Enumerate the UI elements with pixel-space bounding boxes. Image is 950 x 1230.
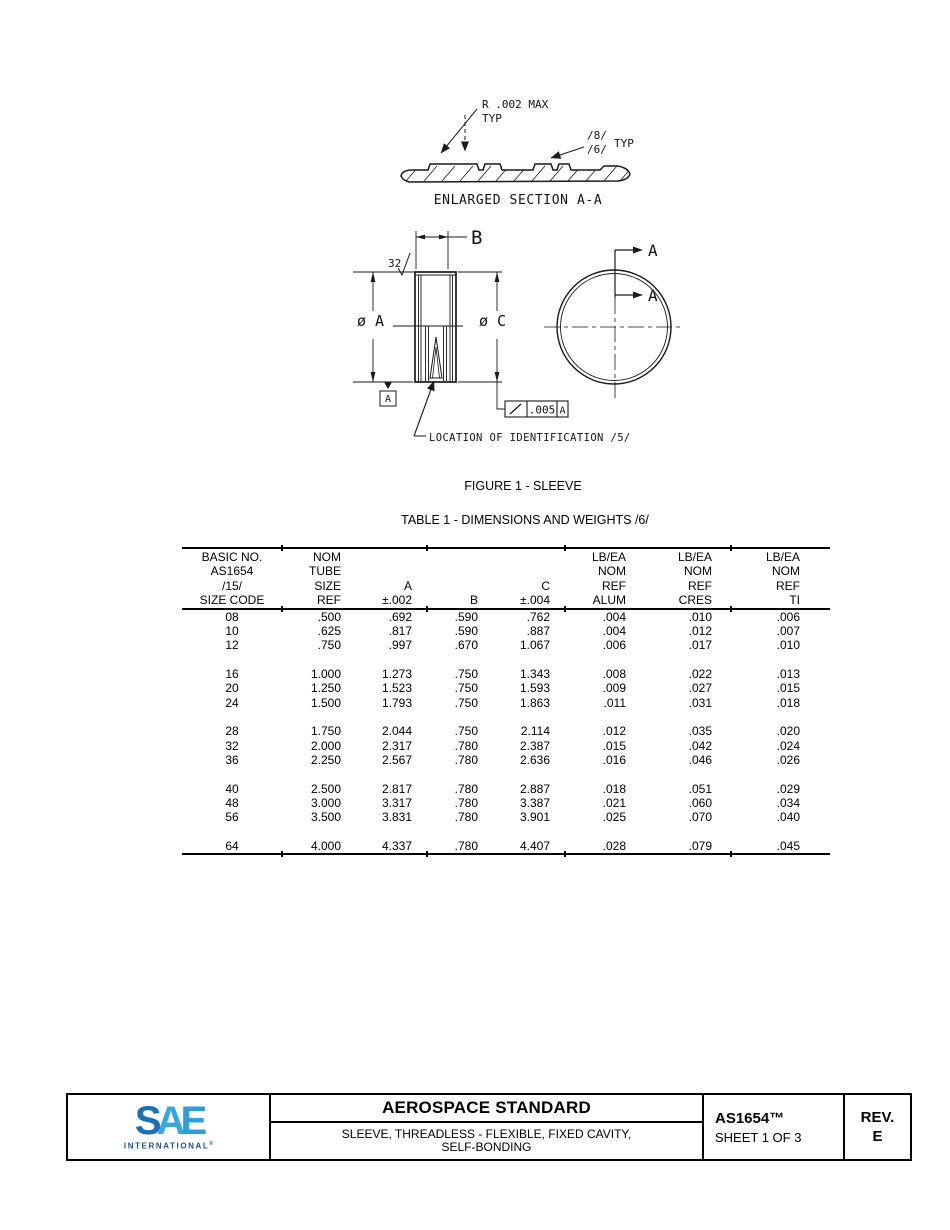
table-cell: .500 (282, 610, 357, 624)
document-subtitle-line2: SELF-BONDING (271, 1141, 702, 1155)
table-cell: .006 (565, 638, 643, 652)
table-row: 322.0002.317.7802.387.015.042.024 (182, 739, 830, 753)
table-header: BASIC NO.AS1654/15/SIZE CODENOMTUBESIZER… (182, 549, 830, 608)
column-header-5: C±.004 (493, 550, 565, 608)
table-cell: 40 (182, 782, 282, 796)
row-group: 08.500.692.590.762.004.010.00610.625.817… (182, 610, 830, 653)
table-cell: .015 (565, 739, 643, 753)
table-row: 563.5003.831.7803.901.025.070.040 (182, 810, 830, 824)
column-header-6: LB/EANOMREFALUM (565, 550, 643, 608)
table-cell: 2.636 (493, 753, 565, 767)
table-cell: .040 (731, 810, 830, 824)
table-cell: 3.831 (357, 810, 427, 824)
table-cell: 3.901 (493, 810, 565, 824)
column-header-7: LB/EANOMREFCRES (643, 550, 731, 608)
table-caption: TABLE 1 - DIMENSIONS AND WEIGHTS /6/ (100, 513, 950, 527)
rev-value: E (872, 1127, 882, 1146)
table-row: 281.7502.044.7502.114.012.035.020 (182, 724, 830, 738)
table-cell: .887 (493, 624, 565, 638)
dim-a-label: ø A (357, 312, 384, 330)
document-type-title: AEROSPACE STANDARD (271, 1095, 702, 1123)
table-cell: 56 (182, 810, 282, 824)
table-cell: .024 (731, 739, 830, 753)
table-cell: .012 (565, 724, 643, 738)
table-cell: .750 (427, 696, 493, 710)
table-cell: .007 (731, 624, 830, 638)
table-cell: 2.387 (493, 739, 565, 753)
table-cell: 2.817 (357, 782, 427, 796)
table-row: 10.625.817.590.887.004.012.007 (182, 624, 830, 638)
table-cell: .011 (565, 696, 643, 710)
sleeve-end-view: A A (544, 241, 684, 401)
table-row: 362.2502.567.7802.636.016.046.026 (182, 753, 830, 767)
table-cell: .029 (731, 782, 830, 796)
title-block-center: AEROSPACE STANDARD SLEEVE, THREADLESS - … (271, 1095, 704, 1159)
table-cell: 2.887 (493, 782, 565, 796)
table-cell: .780 (427, 739, 493, 753)
row-group: 402.5002.817.7802.887.018.051.029483.000… (182, 782, 830, 825)
column-header-1: BASIC NO.AS1654/15/SIZE CODE (182, 550, 282, 608)
datum-a-label: A (385, 394, 391, 405)
title-block-rev-cell: REV. E (845, 1095, 910, 1159)
figure1-sleeve-drawing: R .002 MAX TYP /8/ /6/ TYP ENLARGED SECT… (330, 85, 700, 457)
radius-note-line2: TYP (482, 112, 502, 125)
table-cell: 36 (182, 753, 282, 767)
table-cell: 2.114 (493, 724, 565, 738)
dim-b-label: B (471, 227, 482, 249)
table-cell: .780 (427, 810, 493, 824)
table-cell: .012 (643, 624, 731, 638)
column-header-3: A±.002 (357, 550, 427, 608)
table-cell: 4.407 (493, 839, 565, 853)
table-cell: .020 (731, 724, 830, 738)
table-cell: 2.500 (282, 782, 357, 796)
table-cell: 4.337 (357, 839, 427, 853)
column-header-8: LB/EANOMREFTI (731, 550, 830, 608)
table-cell: 1.750 (282, 724, 357, 738)
sae-letter-e: E (180, 1099, 202, 1143)
sae-letter-a: A (157, 1099, 181, 1143)
table-cell: .010 (731, 638, 830, 652)
table-row: 241.5001.793.7501.863.011.031.018 (182, 696, 830, 710)
finish-typ-label: TYP (614, 137, 634, 150)
radius-note-line1: R .002 MAX (482, 98, 549, 111)
table-cell: .017 (643, 638, 731, 652)
sae-logo: SAE INTERNATIONAL® (68, 1095, 271, 1159)
table-cell: .051 (643, 782, 731, 796)
table-cell: 1.523 (357, 681, 427, 695)
title-block-number-cell: AS1654™ SHEET 1 OF 3 (704, 1095, 845, 1159)
table-cell: 10 (182, 624, 282, 638)
finish-flag-top: /8/ (587, 129, 607, 142)
table-cell: 2.250 (282, 753, 357, 767)
finish-flag-callout: /8/ /6/ TYP (551, 129, 634, 158)
table-row: 483.0003.317.7803.387.021.060.034 (182, 796, 830, 810)
table-cell: .010 (643, 610, 731, 624)
table-cell: .046 (643, 753, 731, 767)
table-header-rule (182, 608, 830, 610)
table-cell: .027 (643, 681, 731, 695)
registered-mark-icon: ® (209, 1141, 213, 1147)
sae-letter-s: S (135, 1099, 157, 1143)
table-cell: 12 (182, 638, 282, 652)
table-cell: .004 (565, 610, 643, 624)
table-cell: .750 (282, 638, 357, 652)
table-cell: 1.593 (493, 681, 565, 695)
table-cell: .026 (731, 753, 830, 767)
surface-finish-value: 32 (388, 257, 401, 270)
table-cell: .015 (731, 681, 830, 695)
sae-logo-letters: SAE (135, 1103, 202, 1139)
enlarged-section-caption: ENLARGED SECTION A-A (434, 193, 603, 208)
table-cell: .035 (643, 724, 731, 738)
identification-callout: LOCATION OF IDENTIFICATION /5/ (414, 381, 631, 444)
table-cell: 2.044 (357, 724, 427, 738)
table-cell: 1.250 (282, 681, 357, 695)
table-cell: .013 (731, 667, 830, 681)
table-cell: .780 (427, 796, 493, 810)
dim-c: ø C (458, 272, 506, 382)
table-cell: 24 (182, 696, 282, 710)
table-cell: 28 (182, 724, 282, 738)
table-cell: .021 (565, 796, 643, 810)
table-cell: .750 (427, 667, 493, 681)
runout-control-frame: .005 A (497, 382, 568, 417)
sae-logo-tagline: INTERNATIONAL® (124, 1141, 213, 1151)
table-cell: .780 (427, 782, 493, 796)
runout-symbol-icon (510, 404, 521, 414)
section-cut-label-top: A (648, 241, 658, 260)
table-cell: .009 (565, 681, 643, 695)
table-cell: .670 (427, 638, 493, 652)
table-row: 644.0004.337.7804.407.028.079.045 (182, 839, 830, 853)
table-cell: .025 (565, 810, 643, 824)
row-group: 644.0004.337.7804.407.028.079.045 (182, 839, 830, 853)
table-cell: 1.793 (357, 696, 427, 710)
table-cell: 3.387 (493, 796, 565, 810)
table-body: 08.500.692.590.762.004.010.00610.625.817… (182, 610, 830, 854)
table-cell: 4.000 (282, 839, 357, 853)
table-cell: 1.863 (493, 696, 565, 710)
table-cell: 2.567 (357, 753, 427, 767)
runout-value: .005 (529, 404, 556, 417)
title-block: SAE INTERNATIONAL® AEROSPACE STANDARD SL… (66, 1093, 912, 1161)
table-cell: .625 (282, 624, 357, 638)
table-cell: .016 (565, 753, 643, 767)
table-cell: 1.343 (493, 667, 565, 681)
table-cell: .045 (731, 839, 830, 853)
identification-note: LOCATION OF IDENTIFICATION /5/ (429, 432, 631, 444)
table-cell: 2.317 (357, 739, 427, 753)
table-cell: .079 (643, 839, 731, 853)
sheet-number: SHEET 1 OF 3 (715, 1130, 843, 1145)
document-subtitle: SLEEVE, THREADLESS - FLEXIBLE, FIXED CAV… (271, 1123, 702, 1159)
dim-c-label: ø C (479, 312, 506, 330)
table-cell: .590 (427, 610, 493, 624)
table-cell: .006 (731, 610, 830, 624)
runout-datum: A (559, 406, 565, 417)
table-cell: .997 (357, 638, 427, 652)
table-cell: .762 (493, 610, 565, 624)
figure-caption: FIGURE 1 - SLEEVE (96, 479, 950, 493)
table-cell: 1.273 (357, 667, 427, 681)
table-cell: .018 (731, 696, 830, 710)
table-cell: .750 (427, 681, 493, 695)
table-top-rule (182, 547, 830, 549)
section-hatching (406, 166, 633, 181)
table-cell: .070 (643, 810, 731, 824)
table-cell: 1.000 (282, 667, 357, 681)
table-cell: 3.000 (282, 796, 357, 810)
column-header-4: B (427, 550, 493, 608)
section-cut-label-bottom: A (648, 286, 658, 305)
table-cell: .034 (731, 796, 830, 810)
table-cell: .590 (427, 624, 493, 638)
table-row: 12.750.997.6701.067.006.017.010 (182, 638, 830, 652)
table-cell: .817 (357, 624, 427, 638)
document-page: R .002 MAX TYP /8/ /6/ TYP ENLARGED SECT… (0, 0, 950, 1230)
table-cell: 2.000 (282, 739, 357, 753)
document-subtitle-line1: SLEEVE, THREADLESS - FLEXIBLE, FIXED CAV… (271, 1128, 702, 1142)
table-cell: 3.500 (282, 810, 357, 824)
table-cell: 08 (182, 610, 282, 624)
table-row: 161.0001.273.7501.343.008.022.013 (182, 667, 830, 681)
table-cell: .042 (643, 739, 731, 753)
dim-a: ø A (353, 272, 415, 382)
table-cell: .750 (427, 724, 493, 738)
table-cell: 20 (182, 681, 282, 695)
sleeve-side-view (393, 272, 463, 382)
table-cell: 3.317 (357, 796, 427, 810)
table-cell: 1.067 (493, 638, 565, 652)
table-cell: 32 (182, 739, 282, 753)
enlarged-section-profile (401, 164, 633, 182)
table-cell: .060 (643, 796, 731, 810)
table-cell: .028 (565, 839, 643, 853)
table-cell: .004 (565, 624, 643, 638)
table-cell: 16 (182, 667, 282, 681)
column-header-2: NOMTUBESIZEREF (282, 550, 357, 608)
table-cell: .018 (565, 782, 643, 796)
table-cell: 1.500 (282, 696, 357, 710)
table-cell: .692 (357, 610, 427, 624)
table-cell: .031 (643, 696, 731, 710)
table-row: 402.5002.817.7802.887.018.051.029 (182, 782, 830, 796)
radius-callout: R .002 MAX TYP (441, 98, 549, 153)
table-cell: 48 (182, 796, 282, 810)
table-cell: .780 (427, 753, 493, 767)
dim-b: B (416, 227, 482, 269)
row-group: 161.0001.273.7501.343.008.022.013201.250… (182, 667, 830, 710)
document-number: AS1654™ (715, 1110, 843, 1127)
table-cell: 64 (182, 839, 282, 853)
table-cell: .022 (643, 667, 731, 681)
table-cell: .780 (427, 839, 493, 853)
dimensions-table: BASIC NO.AS1654/15/SIZE CODENOMTUBESIZER… (182, 547, 830, 855)
table-row: 08.500.692.590.762.004.010.006 (182, 610, 830, 624)
rev-label: REV. (861, 1108, 895, 1127)
finish-flag-bottom: /6/ (587, 143, 607, 156)
row-group: 281.7502.044.7502.114.012.035.020322.000… (182, 724, 830, 767)
table-bottom-rule (182, 853, 830, 855)
table-row: 201.2501.523.7501.593.009.027.015 (182, 681, 830, 695)
table-cell: .008 (565, 667, 643, 681)
datum-a-symbol: A (380, 382, 396, 406)
